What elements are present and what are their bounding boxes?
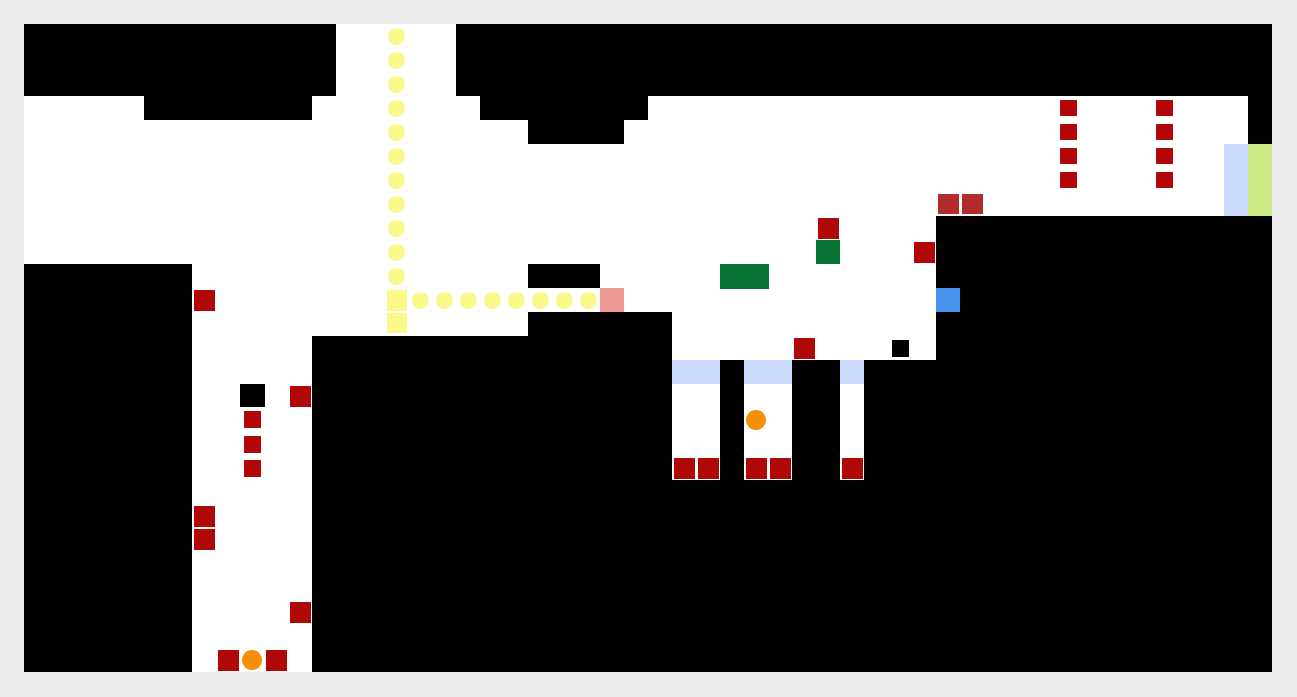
trail-dot (388, 196, 405, 213)
orange-ball (746, 410, 766, 430)
red-block (842, 458, 863, 479)
floor-region (24, 96, 144, 120)
gate-tile (744, 360, 792, 384)
trail-dot (388, 100, 405, 117)
game-board[interactable] (24, 24, 1272, 672)
floor-region (24, 144, 1224, 216)
gate-tile (840, 360, 864, 384)
game-page (0, 0, 1297, 697)
black-block (892, 340, 909, 357)
red-block (914, 242, 935, 263)
trail-dot (388, 28, 405, 45)
trail-dot (388, 268, 405, 285)
small-red-block (1156, 124, 1173, 140)
trail-dot (388, 52, 405, 69)
small-red-block (1156, 100, 1173, 116)
blue-tile (936, 288, 960, 312)
red-block (290, 386, 311, 407)
trail-dot (412, 292, 429, 309)
orange-ball (242, 650, 262, 670)
green-block (816, 240, 840, 264)
small-red-block (244, 411, 261, 428)
red-block (746, 458, 767, 479)
small-red-block (1060, 172, 1077, 188)
small-red-block (1060, 100, 1077, 116)
floor-region (192, 312, 528, 336)
yellow-marker (387, 290, 407, 311)
trail-dot (460, 292, 477, 309)
salmon-tile (600, 288, 624, 312)
trail-dot (556, 292, 573, 309)
trail-dot (508, 292, 525, 309)
red-block (698, 458, 719, 479)
black-block (240, 384, 265, 407)
trail-dot (388, 148, 405, 165)
brick-block (938, 194, 959, 214)
red-block (194, 506, 215, 527)
red-block (674, 458, 695, 479)
red-block (218, 650, 239, 671)
red-block (794, 338, 815, 359)
exit-bar (1248, 144, 1272, 216)
red-block (266, 650, 287, 671)
small-red-block (1156, 172, 1173, 188)
trail-dot (388, 76, 405, 93)
trail-dot (580, 292, 597, 309)
brick-block (962, 194, 983, 214)
small-red-block (1060, 124, 1077, 140)
small-red-block (1156, 148, 1173, 164)
trail-dot (436, 292, 453, 309)
small-red-block (244, 460, 261, 477)
floor-region (624, 120, 1248, 144)
floor-region (24, 120, 528, 144)
small-red-block (1060, 148, 1077, 164)
gate-bar (1224, 144, 1248, 216)
floor-region (192, 264, 528, 288)
yellow-marker (387, 313, 407, 333)
gate-tile (672, 360, 720, 384)
trail-dot (532, 292, 549, 309)
trail-dot (388, 124, 405, 141)
trail-dot (484, 292, 501, 309)
red-block (770, 458, 791, 479)
red-block (194, 529, 215, 550)
red-block (290, 602, 311, 623)
red-block (818, 218, 839, 239)
green-bar (720, 264, 769, 289)
red-block (194, 290, 215, 311)
trail-dot (388, 172, 405, 189)
floor-region (24, 216, 936, 264)
small-red-block (244, 436, 261, 453)
trail-dot (388, 220, 405, 237)
trail-dot (388, 244, 405, 261)
